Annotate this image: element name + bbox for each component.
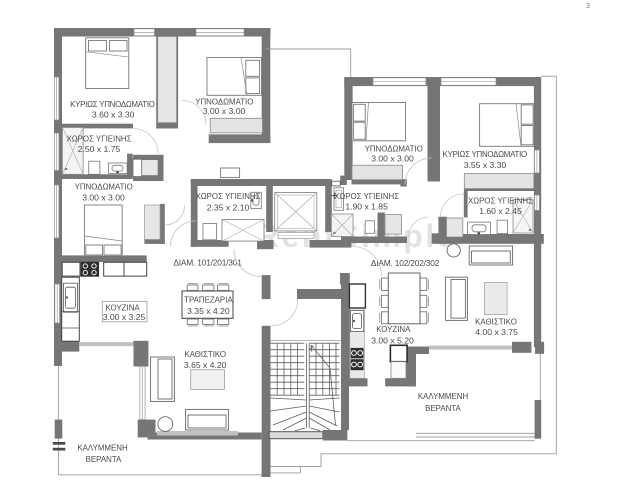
svg-text:4.00 x 3.75: 4.00 x 3.75: [475, 327, 518, 337]
svg-text:ΔΙΑΜ. 102/202/302: ΔΙΑΜ. 102/202/302: [371, 258, 440, 268]
svg-text:2.35 x 2.10: 2.35 x 2.10: [207, 203, 250, 213]
svg-text:ΚΑΛΥΜΜΕΝΗ: ΚΑΛΥΜΜΕΝΗ: [418, 392, 469, 401]
svg-text:ΚΑΘΙΣΤΙΚΟ: ΚΑΘΙΣΤΙΚΟ: [475, 318, 517, 327]
svg-text:ΚΟΥΖΙΝΑ: ΚΟΥΖΙΝΑ: [376, 325, 411, 334]
svg-text:3.35 x 4.20: 3.35 x 4.20: [187, 306, 230, 316]
svg-text:ΚΑΘΙΣΤΙΚΟ: ΚΑΘΙΣΤΙΚΟ: [184, 350, 226, 359]
svg-text:ΒΕΡΑΝΤΑ: ΒΕΡΑΝΤΑ: [86, 455, 122, 464]
svg-text:3.00 x 5.20: 3.00 x 5.20: [371, 335, 414, 345]
svg-text:3.55 x 3.30: 3.55 x 3.30: [464, 160, 507, 170]
svg-text:3.00 x 3.00: 3.00 x 3.00: [82, 193, 125, 203]
svg-text:3.65 x 4.20: 3.65 x 4.20: [184, 360, 227, 370]
svg-text:ΤΡΑΠΕΖΑΡΙΑ: ΤΡΑΠΕΖΑΡΙΑ: [184, 296, 233, 305]
svg-text:ΚΥΡΙΩΣ ΥΠΝΟΔΩΜΑΤΙΟ: ΚΥΡΙΩΣ ΥΠΝΟΔΩΜΑΤΙΟ: [442, 150, 527, 159]
svg-text:ΧΩΡΟΣ ΥΓΙΕΙΝΗΣ: ΧΩΡΟΣ ΥΓΙΕΙΝΗΣ: [66, 135, 131, 144]
svg-text:ΚΑΛΥΜΜΕΝΗ: ΚΑΛΥΜΜΕΝΗ: [77, 444, 128, 453]
svg-text:1.90 x 1.85: 1.90 x 1.85: [345, 202, 388, 212]
svg-text:1.60 x 2.45: 1.60 x 2.45: [479, 206, 522, 216]
svg-text:3.00 x 3.25: 3.00 x 3.25: [103, 312, 146, 322]
svg-text:ΔΙΑΜ. 101/201/301: ΔΙΑΜ. 101/201/301: [173, 258, 242, 268]
svg-text:ΚΥΡΙΩΣ ΥΠΝΟΔΩΜΑΤΙΟ: ΚΥΡΙΩΣ ΥΠΝΟΔΩΜΑΤΙΟ: [70, 100, 155, 109]
svg-text:ΧΩΡΟΣ ΥΓΙΕΙΝΗΣ: ΧΩΡΟΣ ΥΓΙΕΙΝΗΣ: [468, 196, 533, 205]
svg-text:ΥΠΝΟΔΩΜΑΤΙΟ: ΥΠΝΟΔΩΜΑΤΙΟ: [75, 183, 133, 192]
svg-text:ΧΩΡΟΣ ΥΓΙΕΙΝΗΣ: ΧΩΡΟΣ ΥΓΙΕΙΝΗΣ: [334, 192, 399, 201]
svg-text:3.60 x 3.30: 3.60 x 3.30: [92, 110, 135, 120]
svg-text:ΧΩΡΟΣ ΥΓΙΕΙΝΗΣ: ΧΩΡΟΣ ΥΓΙΕΙΝΗΣ: [195, 192, 260, 201]
svg-text:ΥΠΝΟΔΩΜΑΤΙΟ: ΥΠΝΟΔΩΜΑΤΙΟ: [365, 145, 423, 154]
svg-text:3: 3: [586, 3, 590, 10]
svg-text:ΒΕΡΑΝΤΑ: ΒΕΡΑΝΤΑ: [425, 404, 461, 413]
svg-text:3.00 x 3.00: 3.00 x 3.00: [203, 106, 246, 116]
svg-text:3.00 x 3.00: 3.00 x 3.00: [371, 154, 414, 164]
svg-text:2.50 x 1.75: 2.50 x 1.75: [78, 144, 121, 154]
